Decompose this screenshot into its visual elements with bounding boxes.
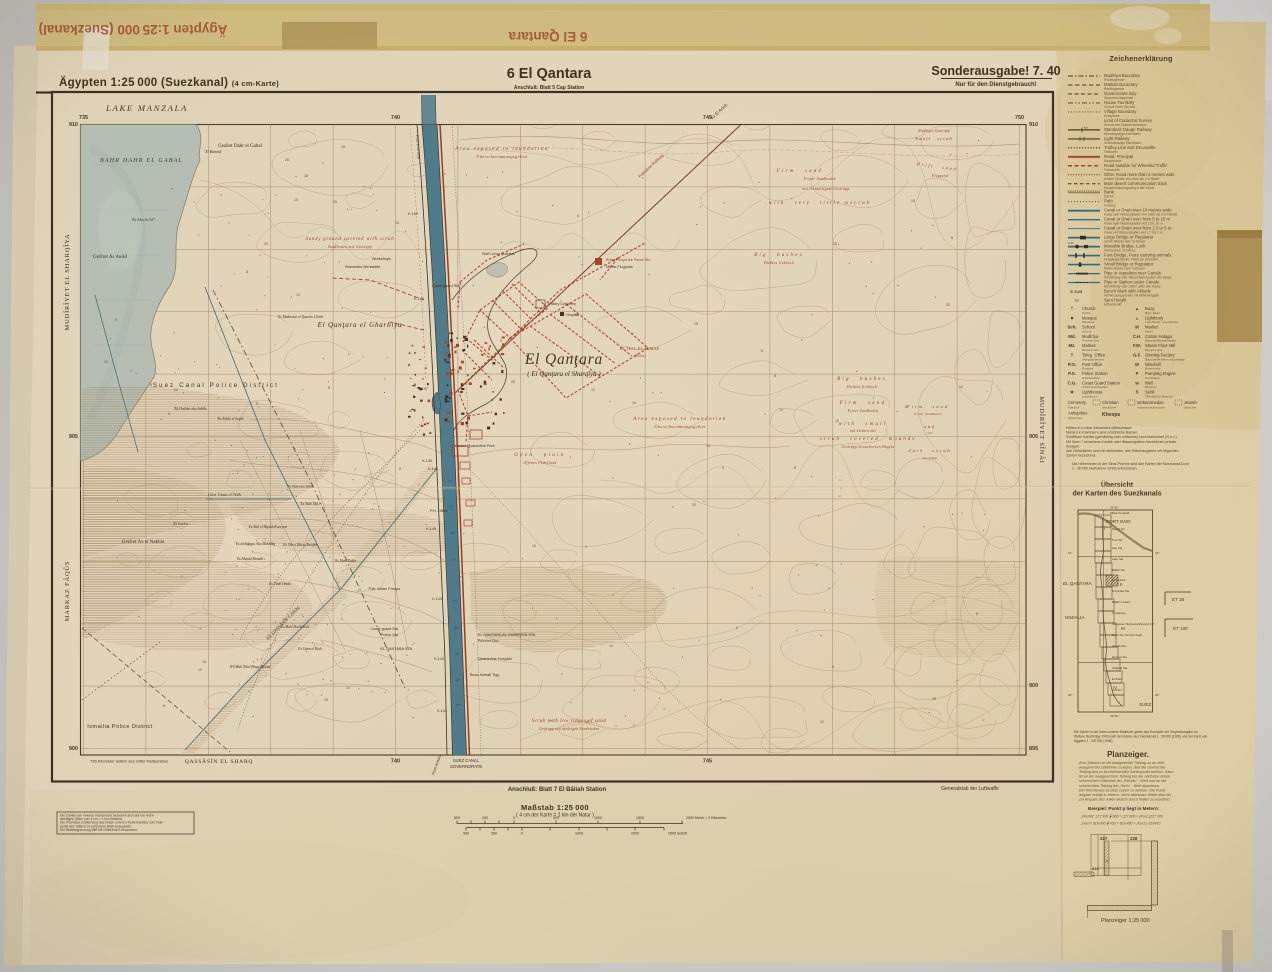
svg-text:Gestrüpp bewachsenen Hügeln: Gestrüpp bewachsenen Hügeln bbox=[841, 445, 894, 449]
svg-text:10: 10 bbox=[104, 360, 108, 364]
svg-text:Ex Umm el Riah: Ex Umm el Riah bbox=[297, 647, 322, 651]
svg-text:2000 Meter = 2 Kilometer: 2000 Meter = 2 Kilometer bbox=[686, 816, 727, 820]
svg-text:Weitere Nachträge 1940 nach de: Weitere Nachträge 1940 nach den Karten d… bbox=[1074, 734, 1208, 738]
svg-text:K.143: K.143 bbox=[432, 597, 442, 601]
svg-text:1000: 1000 bbox=[575, 832, 583, 836]
svg-text:12: 12 bbox=[591, 388, 595, 392]
svg-text:P.O.: P.O. bbox=[1068, 362, 1076, 367]
svg-text:Dichtes Gebüsch: Dichtes Gebüsch bbox=[846, 385, 877, 389]
svg-text:MUDÎRÎYET SÎNÂI: MUDÎRÎYET SÎNÂI bbox=[1038, 396, 1046, 463]
svg-text:Leuchtturm: Leuchtturm bbox=[1082, 395, 1098, 399]
svg-text:C.H.: C.H. bbox=[1133, 334, 1141, 339]
svg-text:G.F.: G.F. bbox=[1133, 353, 1141, 358]
svg-text:Überschwemmungsgebiet: Überschwemmungsgebiet bbox=[476, 154, 528, 159]
svg-text:’Es Abu Sa’îd*: ’Es Abu Sa’îd* bbox=[131, 217, 155, 222]
svg-text:12: 12 bbox=[779, 408, 783, 412]
svg-text:Eisenbahn-Werkstätte: Eisenbahn-Werkstätte bbox=[345, 265, 380, 269]
svg-text:with very little scrub: with very little scrub bbox=[769, 201, 872, 206]
svg-text:waagerechte Gitterlinie zu: waagerechte Gitterlinie zu legen, daß di… bbox=[1079, 766, 1165, 770]
svg-text:Scrub with low ridges of sand: Scrub with low ridges of sand bbox=[532, 719, 607, 724]
svg-text:Big bushes: Big bushes bbox=[837, 377, 887, 382]
svg-text:El Qanţara el Gharbîya: El Qanţara el Gharbîya bbox=[317, 321, 403, 329]
svg-text:15: 15 bbox=[694, 322, 698, 326]
svg-text:8: 8 bbox=[951, 236, 953, 240]
svg-text:8: 8 bbox=[774, 374, 776, 378]
svg-text:Die Blattbegrenzung fällt mit: Die Blattbegrenzung fällt mit Gitterlini… bbox=[60, 828, 138, 832]
svg-text:Schiffbare Kanäle (gemächlig o: Schiffbare Kanäle (gemächlig oder zeitwe… bbox=[1066, 435, 1178, 439]
svg-text:angabe erfolgt in Metern.: angabe erfolgt in Metern. Nicht ablesbar… bbox=[1079, 793, 1171, 797]
svg-text:Gestrüpp: Gestrüpp bbox=[923, 456, 937, 460]
svg-text:Öffentlicher Brunnen: Öffentlicher Brunnen bbox=[1145, 395, 1174, 399]
svg-text:745: 745 bbox=[703, 759, 712, 765]
svg-text:Alle Höhenlinien sind mit steh: Alle Höhenlinien sind mit stehenden, all… bbox=[1066, 449, 1179, 453]
svg-text:Küstenwachstation: Küstenwachstation bbox=[1082, 385, 1108, 389]
svg-text:S.B.: S.B. bbox=[1068, 241, 1074, 245]
svg-text:P: P bbox=[1136, 371, 1139, 376]
svg-text:’Es Muh Thâbr: ’Es Muh Thâbr bbox=[334, 559, 357, 563]
svg-text:6: 6 bbox=[722, 466, 724, 470]
svg-text:Shallufa Sta: Shallufa Sta bbox=[1112, 666, 1128, 670]
svg-text:6: 6 bbox=[577, 214, 579, 218]
svg-text:20: 20 bbox=[264, 242, 268, 246]
svg-text:910: 910 bbox=[69, 122, 78, 128]
svg-text:Bezirksverw.: Bezirksverw. bbox=[1082, 348, 1100, 352]
svg-text:32°30′: 32°30′ bbox=[1110, 714, 1119, 718]
svg-text:Staff Living Quarters: Staff Living Quarters bbox=[482, 252, 515, 256]
svg-text:Dichtes Gebüsch: Dichtes Gebüsch bbox=[763, 261, 794, 265]
svg-text:QASSÂSÎN EL SHARQ: QASSÂSÎN EL SHARQ bbox=[185, 757, 253, 765]
svg-text:8: 8 bbox=[761, 349, 763, 353]
svg-text:Cap Sta: Cap Sta bbox=[1112, 546, 1123, 550]
svg-text:El Qanţara: El Qanţara bbox=[524, 351, 603, 368]
svg-text:Mohammedan: Mohammedan bbox=[1137, 400, 1164, 405]
svg-text:6: 6 bbox=[168, 412, 170, 416]
svg-text:P.H. Office: P.H. Office bbox=[430, 509, 448, 513]
svg-text:15: 15 bbox=[932, 697, 936, 701]
svg-text:Es Abd el Manâh Kureyem: Es Abd el Manâh Kureyem bbox=[248, 525, 288, 529]
svg-text:Überschwemmungsgebiet: Überschwemmungsgebiet bbox=[654, 424, 706, 429]
svg-text:15: 15 bbox=[706, 444, 710, 448]
svg-text:735 Kilometer östlich des Git: 735 Kilometer östlich des Gitter-Nullpun… bbox=[90, 759, 168, 764]
svg-text:GOVERNORATE: GOVERNORATE bbox=[450, 764, 482, 769]
svg-text:Windmühle: Windmühle bbox=[1145, 367, 1161, 371]
svg-text:Fester Sandboden: Fester Sandboden bbox=[803, 177, 836, 181]
svg-text:Beac Airmail Tlgy: Beac Airmail Tlgy bbox=[470, 673, 499, 677]
svg-text:S: S bbox=[1136, 390, 1139, 395]
svg-text:’Es Muh Thâ’r: ’Es Muh Thâ’r bbox=[299, 502, 321, 506]
svg-text:Gezîret Dahr el Gabal: Gezîret Dahr el Gabal bbox=[218, 144, 263, 149]
svg-text:Militär-Flugplatz: Militär-Flugplatz bbox=[606, 265, 633, 269]
svg-text:P.S.: P.S. bbox=[1068, 371, 1076, 376]
svg-text:Lake Sta: Lake Sta bbox=[1112, 557, 1123, 561]
svg-text:mit lehmartigem Gestrüpp: mit lehmartigem Gestrüpp bbox=[802, 187, 849, 191]
svg-text:740: 740 bbox=[391, 115, 400, 121]
svg-text:Timsahsee: Timsahsee bbox=[1112, 611, 1126, 615]
svg-text:2000: 2000 bbox=[631, 832, 639, 836]
svg-text:Gezîret Ax el Nakhla: Gezîret Ax el Nakhla bbox=[122, 540, 165, 545]
svg-text:Niedriges Gestrüpp: Niedriges Gestrüpp bbox=[917, 129, 950, 133]
svg-text:Area exposed to inundation: Area exposed to inundation bbox=[454, 146, 548, 152]
svg-text:10: 10 bbox=[346, 686, 350, 690]
svg-text:M: M bbox=[1135, 325, 1139, 330]
svg-text:0: 0 bbox=[521, 832, 523, 836]
svg-text:Baumwollhandelsplatz: Baumwollhandelsplatz bbox=[1145, 339, 1176, 343]
svg-text:9: 9 bbox=[832, 665, 834, 669]
svg-text:1000: 1000 bbox=[594, 816, 602, 820]
svg-text:Firm sand: Firm sand bbox=[839, 401, 886, 406]
svg-text:Antiquities: Antiquities bbox=[1068, 411, 1087, 416]
svg-text:with small: with small bbox=[839, 422, 888, 427]
svg-text:31°: 31° bbox=[1155, 551, 1160, 555]
svg-text:10: 10 bbox=[296, 293, 300, 297]
svg-text:9: 9 bbox=[399, 467, 401, 471]
svg-text:W: W bbox=[1135, 362, 1139, 367]
svg-text:I: I bbox=[1104, 526, 1105, 531]
svg-text:Beispiel: Punkt p liegt in Met: Beispiel: Punkt p liegt in Metern: bbox=[1088, 806, 1160, 811]
svg-text:30°: 30° bbox=[1068, 693, 1073, 697]
svg-text:K.150: K.150 bbox=[408, 212, 418, 216]
svg-text:30°: 30° bbox=[1155, 693, 1160, 697]
svg-text:Sonderausgabe! 7. 40: Sonderausgabe! 7. 40 bbox=[931, 64, 1060, 78]
svg-text:20: 20 bbox=[946, 303, 950, 307]
svg-text:K.146: K.146 bbox=[422, 459, 432, 463]
svg-text:Anschluß: Blatt 5 Cap Station: Anschluß: Blatt 5 Cap Station bbox=[514, 85, 584, 91]
svg-text:Geneva Sta: Geneva Sta bbox=[1112, 655, 1127, 659]
svg-text:’Ex Xib el Bûsiq Ibrâhîm: ’Ex Xib el Bûsiq Ibrâhîm bbox=[282, 543, 318, 547]
svg-text:32°30′: 32°30′ bbox=[1110, 506, 1119, 510]
svg-text:LAKE MANZALA: LAKE MANZALA bbox=[105, 103, 188, 113]
svg-text:10: 10 bbox=[632, 401, 636, 405]
svg-text:Planzeiger 1:25 000: Planzeiger 1:25 000 bbox=[1101, 918, 1150, 924]
svg-text:■: ■ bbox=[1071, 315, 1074, 320]
svg-text:Namen in Klammern sind ortsübl: Namen in Klammern sind ortsübliche Namen… bbox=[1066, 431, 1138, 435]
svg-text:T: T bbox=[1071, 353, 1074, 358]
svg-text:500: 500 bbox=[463, 832, 469, 836]
svg-text:Boje, Bake: Boje, Bake bbox=[1145, 311, 1160, 315]
svg-text:15: 15 bbox=[395, 221, 399, 225]
svg-text:735: 735 bbox=[79, 115, 88, 121]
svg-text:El Shatt: El Shatt bbox=[1112, 677, 1122, 681]
svg-text:MARKAZ FÂQÛS: MARKAZ FÂQÛS bbox=[63, 561, 71, 622]
svg-text:20: 20 bbox=[285, 158, 289, 162]
svg-text:Coast guard Sta: Coast guard Sta bbox=[371, 627, 399, 631]
svg-text:and: and bbox=[924, 424, 936, 429]
svg-text:Schule: Schule bbox=[1082, 329, 1092, 333]
svg-text:10: 10 bbox=[532, 544, 536, 548]
svg-text:Offenes Flachland: Offenes Flachland bbox=[523, 461, 556, 465]
svg-text:km: km bbox=[1084, 125, 1089, 129]
svg-text:Brunnen: Brunnen bbox=[1145, 385, 1157, 389]
svg-text:8: 8 bbox=[794, 466, 796, 470]
svg-text:’Ek Drühha abu Sabîla: ’Ek Drühha abu Sabîla bbox=[173, 407, 207, 411]
svg-text:20: 20 bbox=[692, 503, 696, 507]
svg-text:K.145: K.145 bbox=[426, 527, 436, 531]
svg-text:2500 Schritt: 2500 Schritt bbox=[668, 832, 687, 836]
svg-text:Generalstab der Luftwaffe: Generalstab der Luftwaffe bbox=[941, 786, 999, 792]
svg-text:zur Angabe des vollen Mete: zur Angabe des vollen Meters durch Nulle… bbox=[1078, 797, 1171, 801]
svg-text:Zahlen bezeichnet.: Zahlen bezeichnet. bbox=[1066, 454, 1096, 458]
svg-text:Ballah Sta: Ballah Sta bbox=[1112, 568, 1125, 572]
svg-text:Zeichenerklärung: Zeichenerklärung bbox=[1109, 54, 1172, 63]
svg-text:15: 15 bbox=[324, 698, 328, 702]
svg-text:Polizeistation: Polizeistation bbox=[1082, 376, 1101, 380]
svg-text:Area exposed to inundation: Area exposed to inundation bbox=[632, 416, 726, 422]
svg-text:6: 6 bbox=[163, 704, 165, 708]
svg-text:Provinzverw.: Provinzverw. bbox=[1082, 339, 1100, 343]
svg-text:SUEZ: SUEZ bbox=[1139, 702, 1151, 707]
svg-text:El Qantara: El Qantara bbox=[1112, 578, 1126, 582]
svg-text:C.G.: C.G. bbox=[1067, 380, 1076, 385]
svg-text:Es Ahmad Hamdû: Es Ahmad Hamdû bbox=[236, 557, 263, 561]
svg-text:’El Bimeid: ’El Bimeid bbox=[204, 149, 222, 154]
svg-text:’Es alxhângat Abu Makhlūq: ’Es alxhângat Abu Makhlūq bbox=[235, 542, 276, 546]
svg-text:christlicher: christlicher bbox=[1102, 406, 1118, 410]
svg-text:Camel Quarantine Park: Camel Quarantine Park bbox=[455, 444, 495, 448]
svg-text:Baumwollentkörnungsanlage: Baumwollentkörnungsanlage bbox=[1145, 357, 1185, 361]
svg-text:EL QANTARA EL SHARQIYA STA: EL QANTARA EL SHARQIYA STA bbox=[478, 633, 536, 637]
svg-text:mohammedanischer: mohammedanischer bbox=[1137, 406, 1166, 410]
svg-text:9: 9 bbox=[115, 318, 117, 322]
svg-text:Suez Canal Police District: Suez Canal Police District bbox=[153, 383, 279, 389]
svg-text:Gineifa Sta: Gineifa Sta bbox=[1112, 644, 1126, 648]
svg-text:31°: 31° bbox=[1068, 551, 1073, 555]
svg-text:★: ★ bbox=[1069, 390, 1074, 395]
svg-text:18: 18 bbox=[202, 660, 206, 664]
svg-text:Gestrüpp mit niedrigen Sandrüc: Gestrüpp mit niedrigen Sandrücken bbox=[539, 727, 600, 731]
svg-text:mit: mit bbox=[928, 431, 934, 435]
svg-text:Police Sta: Police Sta bbox=[381, 633, 399, 637]
svg-text:6 El Qantara: 6 El Qantara bbox=[508, 29, 587, 44]
svg-text:der Karten des Suezkanals: der Karten des Suezkanals bbox=[1072, 491, 1161, 498]
svg-text:Altertümer: Altertümer bbox=[1067, 416, 1083, 420]
svg-text:Quarantine Hospital: Quarantine Hospital bbox=[478, 657, 512, 661]
svg-text:Es Muh Abu Subeih: Es Muh Abu Subeih bbox=[280, 625, 310, 629]
svg-text:El Ferdan Sta: El Ferdan Sta bbox=[1112, 589, 1130, 593]
svg-text:⊕ 5.23: ⊕ 5.23 bbox=[1070, 289, 1083, 294]
svg-text:Tina Sta: Tina Sta bbox=[1112, 538, 1123, 542]
svg-text:12: 12 bbox=[820, 720, 824, 724]
svg-text:740: 740 bbox=[391, 759, 400, 765]
svg-text:EL TELL EL AHMAR.: EL TELL EL AHMAR. bbox=[619, 346, 661, 351]
svg-text:12: 12 bbox=[198, 668, 202, 672]
svg-text:senkrechten Gitterlinie der: senkrechten Gitterlinie der „Rechts“ - W… bbox=[1079, 779, 1167, 783]
svg-text:900: 900 bbox=[1029, 683, 1038, 689]
svg-text:( El Qanţara el Sharqîya ): ( El Qanţara el Sharqîya ) bbox=[527, 370, 601, 378]
svg-text:Der Rechtswert ist stets z: Der Rechtswert ist stets zuerst zu nenne… bbox=[1079, 788, 1167, 792]
svg-text:K.142: K.142 bbox=[434, 657, 444, 661]
svg-text:228: 228 bbox=[1130, 836, 1138, 841]
svg-text:227: 227 bbox=[1100, 836, 1108, 841]
svg-text:Ismailia Police District: Ismailia Police District bbox=[87, 724, 152, 730]
svg-text:895: 895 bbox=[1029, 746, 1038, 752]
svg-text:12: 12 bbox=[959, 385, 963, 389]
svg-text:’Es Muhaxxat el Qasetro Chârb: ’Es Muhaxxat el Qasetro Chârb bbox=[277, 315, 323, 319]
svg-text:Fayid Sta. El Fa’id Sagh.: Fayid Sta. El Fa’id Sagh. bbox=[1112, 633, 1143, 637]
svg-text:Small scrub: Small scrub bbox=[915, 136, 952, 141]
svg-text:Mit Stern * versehene Kanäle o: Mit Stern * versehene Kanäle oder Wasser… bbox=[1066, 440, 1176, 444]
svg-text:Firm sand: Firm sand bbox=[906, 404, 949, 409]
svg-text:Teilung den zu bezeichnende: Teilung den zu bezeichnenden Kartenpunkt… bbox=[1079, 770, 1173, 774]
svg-text:mit kleinen mit: mit kleinen mit bbox=[850, 429, 877, 433]
svg-text:0: 0 bbox=[513, 816, 515, 820]
svg-text:905: 905 bbox=[1029, 434, 1038, 440]
svg-text:Mittel-Portsaid: Mittel-Portsaid bbox=[1110, 511, 1130, 515]
svg-text:EL QANTARA: EL QANTARA bbox=[1063, 581, 1093, 586]
svg-text:„Rechts“ 227 300 ╋ 900 =: „Rechts“ 227 300 ╋ 900 = 227 300 = (Kurz… bbox=[1080, 814, 1163, 819]
svg-text:ISMAILIA: ISMAILIA bbox=[1065, 615, 1085, 620]
svg-text:PORT SAID: PORT SAID bbox=[1106, 519, 1131, 524]
svg-text:Gîar Umm el Wâh: Gîar Umm el Wâh bbox=[208, 492, 242, 497]
svg-text:12: 12 bbox=[609, 644, 613, 648]
svg-text:Fester Sandboden: Fester Sandboden bbox=[847, 409, 879, 413]
svg-text:750: 750 bbox=[1015, 115, 1024, 121]
svg-text:Jewish: Jewish bbox=[1184, 400, 1197, 405]
svg-text:1500: 1500 bbox=[636, 816, 644, 820]
svg-text:79: 79 bbox=[1074, 298, 1079, 303]
svg-text:900: 900 bbox=[69, 746, 78, 752]
svg-text:9: 9 bbox=[500, 339, 502, 343]
svg-text:6: 6 bbox=[736, 626, 738, 630]
svg-text:BAHR DAHR EL GABAL: BAHR DAHR EL GABAL bbox=[100, 158, 183, 164]
svg-text:ist an der waagerechten Te: ist an der waagerechten Teilung bei der … bbox=[1079, 775, 1170, 779]
svg-text:senkrechten Teilung der „Ho: senkrechten Teilung der „Hoch“ - Wert ab… bbox=[1079, 784, 1160, 788]
svg-text:Sch.: Sch. bbox=[1067, 325, 1076, 330]
svg-text:500: 500 bbox=[553, 816, 559, 820]
svg-text:1 : 36 000 (Aufnahme 1915) e: 1 : 36 000 (Aufnahme 1915) entnommen. bbox=[1072, 467, 1137, 471]
svg-text:Ägypten 1 : 100 000 (1936).: Ägypten 1 : 100 000 (1936). bbox=[1074, 739, 1113, 743]
svg-text:Mz.: Mz. bbox=[1068, 343, 1075, 348]
svg-text:916: 916 bbox=[1092, 866, 1099, 871]
svg-text:Nur für den Dienstgebrauch!: Nur für den Dienstgebrauch! bbox=[955, 82, 1036, 88]
svg-text:Planzeiger.: Planzeiger. bbox=[1107, 750, 1149, 759]
svg-text:18: 18 bbox=[304, 174, 308, 178]
svg-text:EL QANTARA STA: EL QANTARA STA bbox=[380, 647, 412, 651]
svg-text:Die Höhenlinien in der Sin: Die Höhenlinien in der Sinai-Provinz sin… bbox=[1072, 462, 1189, 466]
svg-text:Ras el Ish: Ras el Ish bbox=[1112, 527, 1125, 531]
svg-text:K.141: K.141 bbox=[437, 709, 447, 713]
svg-text:Sandboden mit Gestrüpp: Sandboden mit Gestrüpp bbox=[328, 245, 372, 249]
svg-text:Cemetery: Cemetery bbox=[1068, 400, 1087, 405]
svg-text:15: 15 bbox=[333, 200, 337, 204]
svg-text:Anschluß: Blatt 7 El Bâliah St: Anschluß: Blatt 7 El Bâliah Station bbox=[508, 787, 607, 793]
svg-text:III: III bbox=[1121, 626, 1125, 631]
svg-text:18: 18 bbox=[341, 145, 345, 149]
svg-text:dark scrub: dark scrub bbox=[908, 448, 951, 453]
svg-text:II: II bbox=[1120, 582, 1123, 587]
svg-text:9: 9 bbox=[585, 545, 587, 549]
svg-text:8: 8 bbox=[328, 386, 330, 390]
svg-text:18: 18 bbox=[911, 199, 915, 203]
svg-text:Md.: Md. bbox=[1068, 334, 1076, 339]
svg-text:Moschee: Moschee bbox=[1082, 320, 1095, 324]
svg-text:Friedhof: Friedhof bbox=[1068, 406, 1080, 410]
svg-text:Maßstab 1:25 000: Maßstab 1:25 000 bbox=[521, 803, 589, 812]
svg-text:Palestine Line: Palestine Line bbox=[477, 639, 499, 643]
svg-text:Big bushes: Big bushes bbox=[754, 253, 804, 258]
svg-text:ET 100: ET 100 bbox=[1173, 626, 1188, 631]
svg-text:Höhenpunkt: Höhenpunkt bbox=[1104, 303, 1121, 307]
svg-text:8: 8 bbox=[976, 612, 978, 616]
svg-text:Open plain: Open plain bbox=[514, 453, 565, 458]
svg-text:Ägypten 1:25 000 (Suezkanal): Ägypten 1:25 000 (Suezkanal) bbox=[39, 22, 228, 37]
svg-text:8: 8 bbox=[150, 383, 152, 387]
svg-text:’Ex Xibân el Suţûh: ’Ex Xibân el Suţûh bbox=[216, 417, 243, 421]
svg-text:Anlagen.: Anlagen. bbox=[1066, 444, 1080, 448]
svg-text:Wh Muh Xibel Haqq Rawâd: Wh Muh Xibel Haqq Rawâd bbox=[230, 665, 271, 669]
svg-text:Sandy ground covered with scru: Sandy ground covered with scrub bbox=[306, 237, 395, 242]
svg-text:SUEZ CANAL: SUEZ CANAL bbox=[453, 758, 480, 763]
svg-text:10: 10 bbox=[294, 198, 298, 202]
svg-text:Dampfmühle: Dampfmühle bbox=[1145, 348, 1163, 352]
svg-text:Military Cemetery: Military Cemetery bbox=[548, 302, 576, 306]
svg-text:Canal guard Sta: Canal guard Sta bbox=[432, 284, 460, 288]
svg-text:Höhen in m über Alexandria-Mit: Höhen in m über Alexandria-Mittelwasser. bbox=[1066, 426, 1132, 430]
svg-text:500: 500 bbox=[454, 816, 460, 820]
svg-text:P.W. Water Pumps: P.W. Water Pumps bbox=[369, 587, 401, 591]
svg-text:F.M.: F.M. bbox=[1133, 343, 1141, 348]
svg-text:Christian: Christian bbox=[1102, 400, 1119, 405]
svg-text:8: 8 bbox=[246, 270, 248, 274]
svg-text:250: 250 bbox=[491, 832, 497, 836]
svg-text:Gezîret As Awâd: Gezîret As Awâd bbox=[93, 255, 127, 260]
svg-text:w: w bbox=[1134, 380, 1139, 385]
svg-text:20: 20 bbox=[511, 380, 515, 384]
svg-text:Firm sand: Firm sand bbox=[776, 169, 823, 174]
svg-text:250: 250 bbox=[482, 816, 488, 820]
svg-text:Zum Ablesen ist die waager: Zum Ablesen ist die waagerechte Teilung … bbox=[1078, 761, 1164, 765]
svg-text:(Ruins): (Ruins) bbox=[634, 354, 647, 358]
svg-text:910: 910 bbox=[1029, 122, 1038, 128]
svg-text:Fester Sandboden: Fester Sandboden bbox=[913, 412, 942, 416]
svg-text:Die Zahlen in der linken unter: Die Zahlen in der linken unteren Blattec… bbox=[1074, 730, 1199, 734]
svg-text:Postamt: Postamt bbox=[1082, 367, 1093, 371]
svg-text:MUDÎRÎYET EL SHARQÎYA: MUDÎRÎYET EL SHARQÎYA bbox=[63, 234, 71, 331]
svg-text:Ex Tūah Omân: Ex Tūah Omân bbox=[268, 582, 291, 586]
svg-text:Leuchtboje, Leuchtbake: Leuchtboje, Leuchtbake bbox=[1145, 320, 1178, 324]
svg-text:905: 905 bbox=[69, 434, 78, 440]
svg-text:Markt: Markt bbox=[1145, 329, 1153, 333]
svg-text:Kheops: Kheops bbox=[1102, 412, 1121, 418]
svg-text:6 El Qantara: 6 El Qantara bbox=[507, 66, 593, 82]
svg-text:ET 25: ET 25 bbox=[1172, 597, 1185, 602]
svg-text:„Hoch“ 916 000 ╋ 450 =: „Hoch“ 916 000 ╋ 450 = 916 450 = (Kurz:)… bbox=[1080, 821, 1160, 826]
svg-text:Flugsand: Flugsand bbox=[931, 174, 948, 178]
svg-text:’El Gorîra: ’El Gorîra bbox=[172, 522, 187, 526]
svg-text:Kirche: Kirche bbox=[1082, 311, 1091, 315]
svg-text:18: 18 bbox=[833, 242, 837, 246]
svg-text:Ballah o Fasta: Ballah o Fasta bbox=[1112, 600, 1130, 604]
svg-text:Hospital: Hospital bbox=[566, 313, 579, 317]
svg-text:Serapeum Sta(GebelMaryam) K.T.: Serapeum Sta(GebelMaryam) K.T. bbox=[1112, 622, 1155, 626]
svg-text:El Kubri: El Kubri bbox=[1112, 688, 1122, 692]
svg-text:K.144: K.144 bbox=[428, 467, 438, 471]
svg-text:Telegraphenamt: Telegraphenamt bbox=[1082, 357, 1104, 361]
svg-text:scrub covered mounds: scrub covered mounds bbox=[820, 437, 916, 442]
svg-text:Workshops: Workshops bbox=[372, 257, 391, 261]
svg-text:jüdischer: jüdischer bbox=[1183, 406, 1197, 410]
svg-text:Pumpwerk: Pumpwerk bbox=[1145, 376, 1160, 380]
svg-text:British Royal Air Force Stn: British Royal Air Force Stn bbox=[606, 258, 650, 262]
svg-text:9: 9 bbox=[256, 402, 258, 406]
